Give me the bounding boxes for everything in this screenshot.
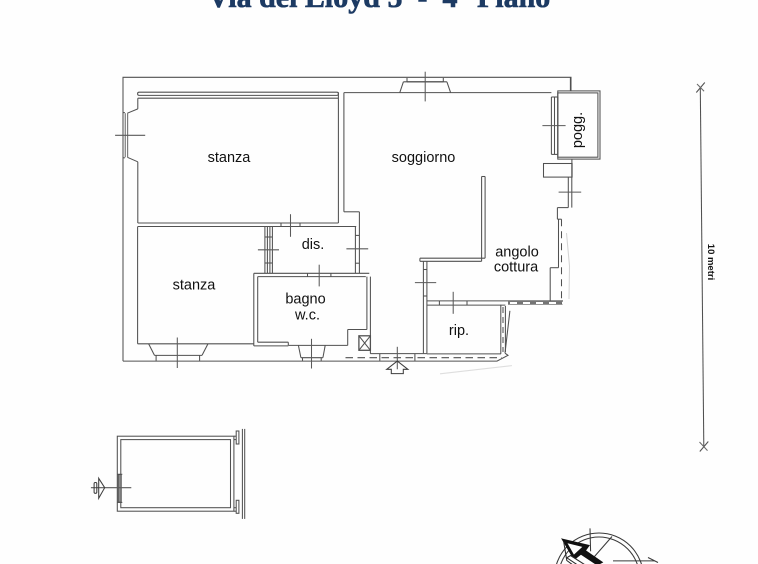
svg-text:w.c.: w.c. <box>294 308 320 324</box>
svg-text:10 metri: 10 metri <box>705 244 716 280</box>
svg-text:pogg.: pogg. <box>570 112 586 148</box>
svg-text:stanza: stanza <box>208 150 252 166</box>
svg-text:angolo: angolo <box>495 245 539 261</box>
svg-text:rip.: rip. <box>449 323 469 339</box>
svg-text:cottura: cottura <box>494 260 539 276</box>
svg-text:soggiorno: soggiorno <box>392 150 456 166</box>
svg-text:bagno: bagno <box>285 292 325 308</box>
svg-text:dis.: dis. <box>302 237 325 253</box>
svg-text:stanza: stanza <box>173 278 217 294</box>
